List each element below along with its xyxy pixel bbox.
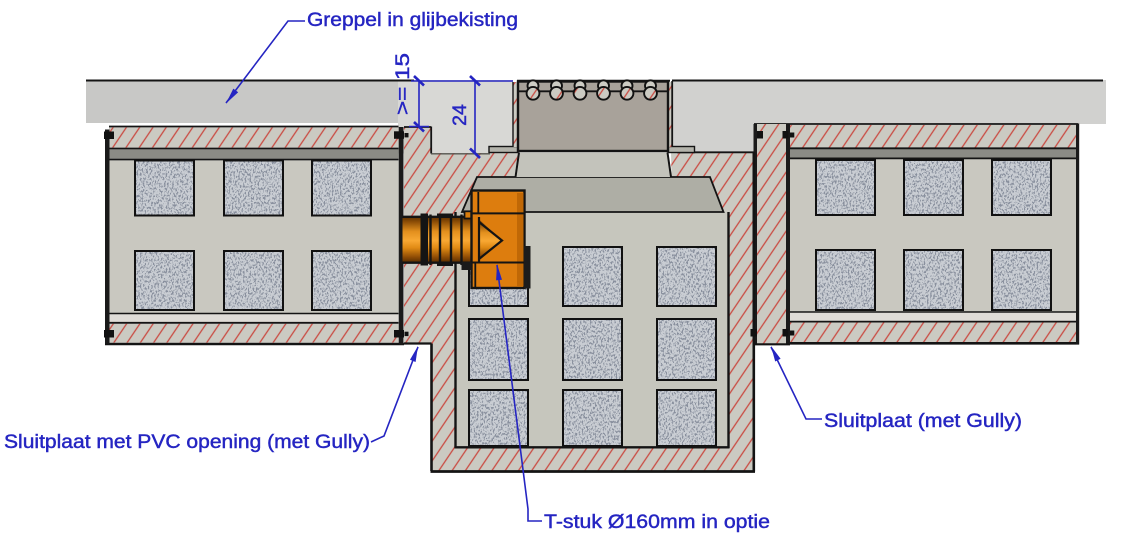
svg-text:Greppel in glijbekisting: Greppel in glijbekisting (307, 9, 518, 31)
svg-text:Sluitplaat (met Gully): Sluitplaat (met Gully) (824, 410, 1022, 432)
svg-text:T-stuk Ø160mm in optie: T-stuk Ø160mm in optie (544, 511, 770, 533)
svg-text:Sluitplaat met PVC opening (me: Sluitplaat met PVC opening (met Gully) (4, 431, 370, 453)
svg-text:24: 24 (449, 104, 471, 126)
svg-text:>= 15: >= 15 (392, 53, 414, 115)
